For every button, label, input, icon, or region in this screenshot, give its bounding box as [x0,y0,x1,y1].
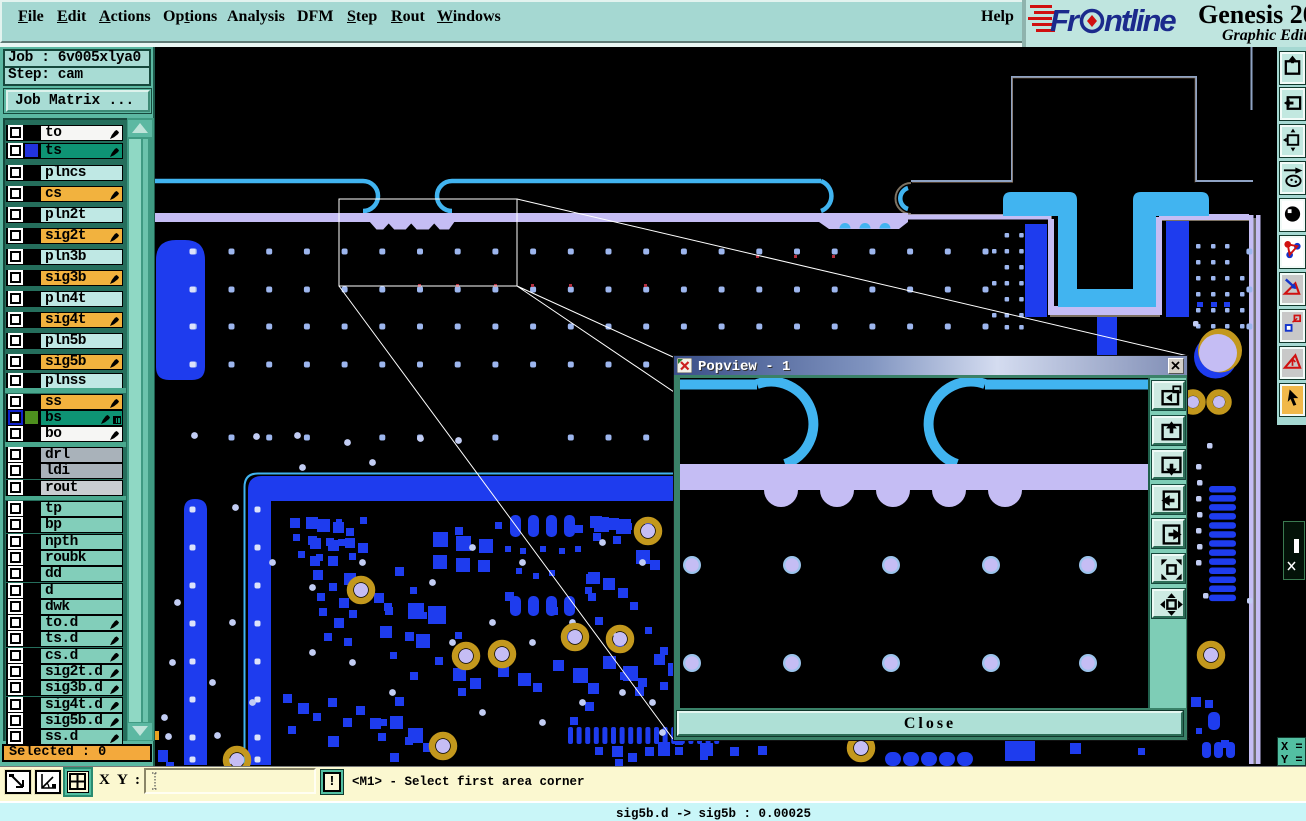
svg-text:ntline: ntline [1104,3,1176,38]
svg-text:Fr: Fr [1050,3,1081,38]
